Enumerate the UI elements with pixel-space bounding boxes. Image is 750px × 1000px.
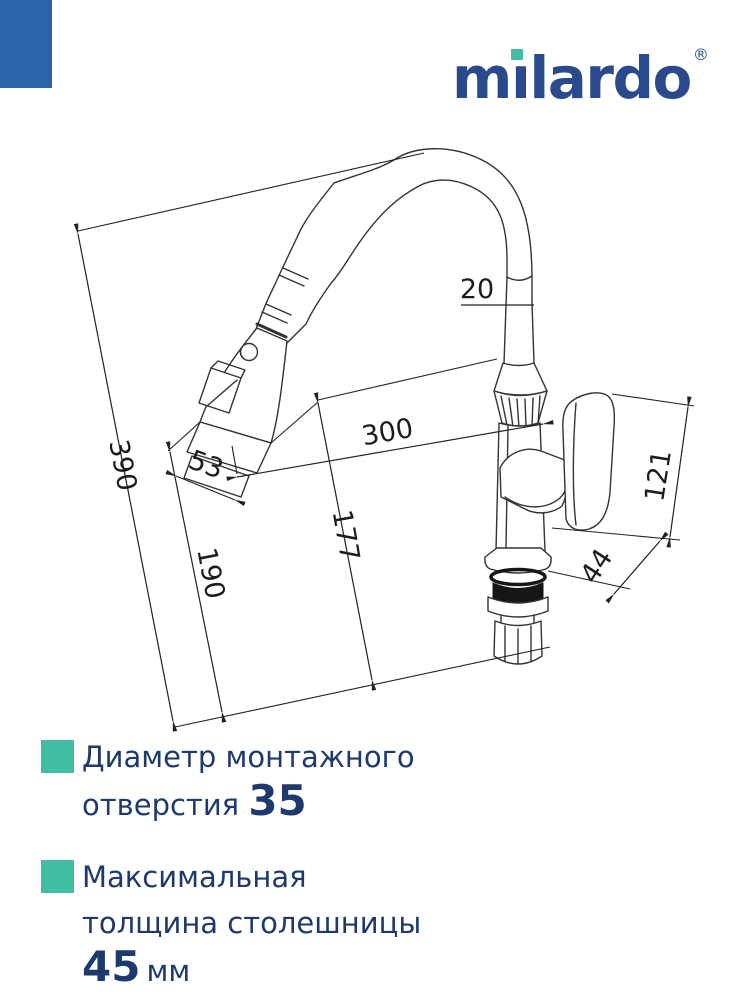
spec-bullet-icon — [41, 860, 74, 893]
dimension-label-190: 190 — [190, 545, 230, 602]
faucet-technical-drawing: 390 190 177 300 53 20 121 44 — [0, 0, 750, 1000]
dimension-label-390: 390 — [102, 437, 142, 494]
spec-value: 45 — [82, 942, 140, 991]
spec-value: 35 — [248, 776, 306, 825]
spec-text: Максимальная толщина столешницы 45мм — [82, 854, 427, 994]
dimension-label-121: 121 — [639, 448, 678, 504]
dim-line-44 — [614, 541, 660, 594]
product-dimensions-page: mılardo® — [0, 0, 750, 1000]
spec-bullet-icon — [41, 740, 74, 773]
spec-text: Диаметр монтажного отверстия 35 — [82, 734, 427, 828]
dimension-label-177: 177 — [326, 507, 365, 563]
spec-suffix: мм — [146, 954, 190, 988]
spec-countertop-thickness: Максимальная толщина столешницы 45мм — [41, 854, 461, 994]
faucet-outline — [184, 149, 614, 664]
dimension-label-300: 300 — [359, 413, 415, 452]
spec-label: Максимальная толщина столешницы — [82, 860, 421, 940]
dimension-label-44: 44 — [575, 544, 620, 590]
spec-mounting-hole: Диаметр монтажного отверстия 35 — [41, 734, 461, 828]
countertop-baseline — [175, 647, 550, 727]
dimension-label-20: 20 — [460, 274, 494, 305]
